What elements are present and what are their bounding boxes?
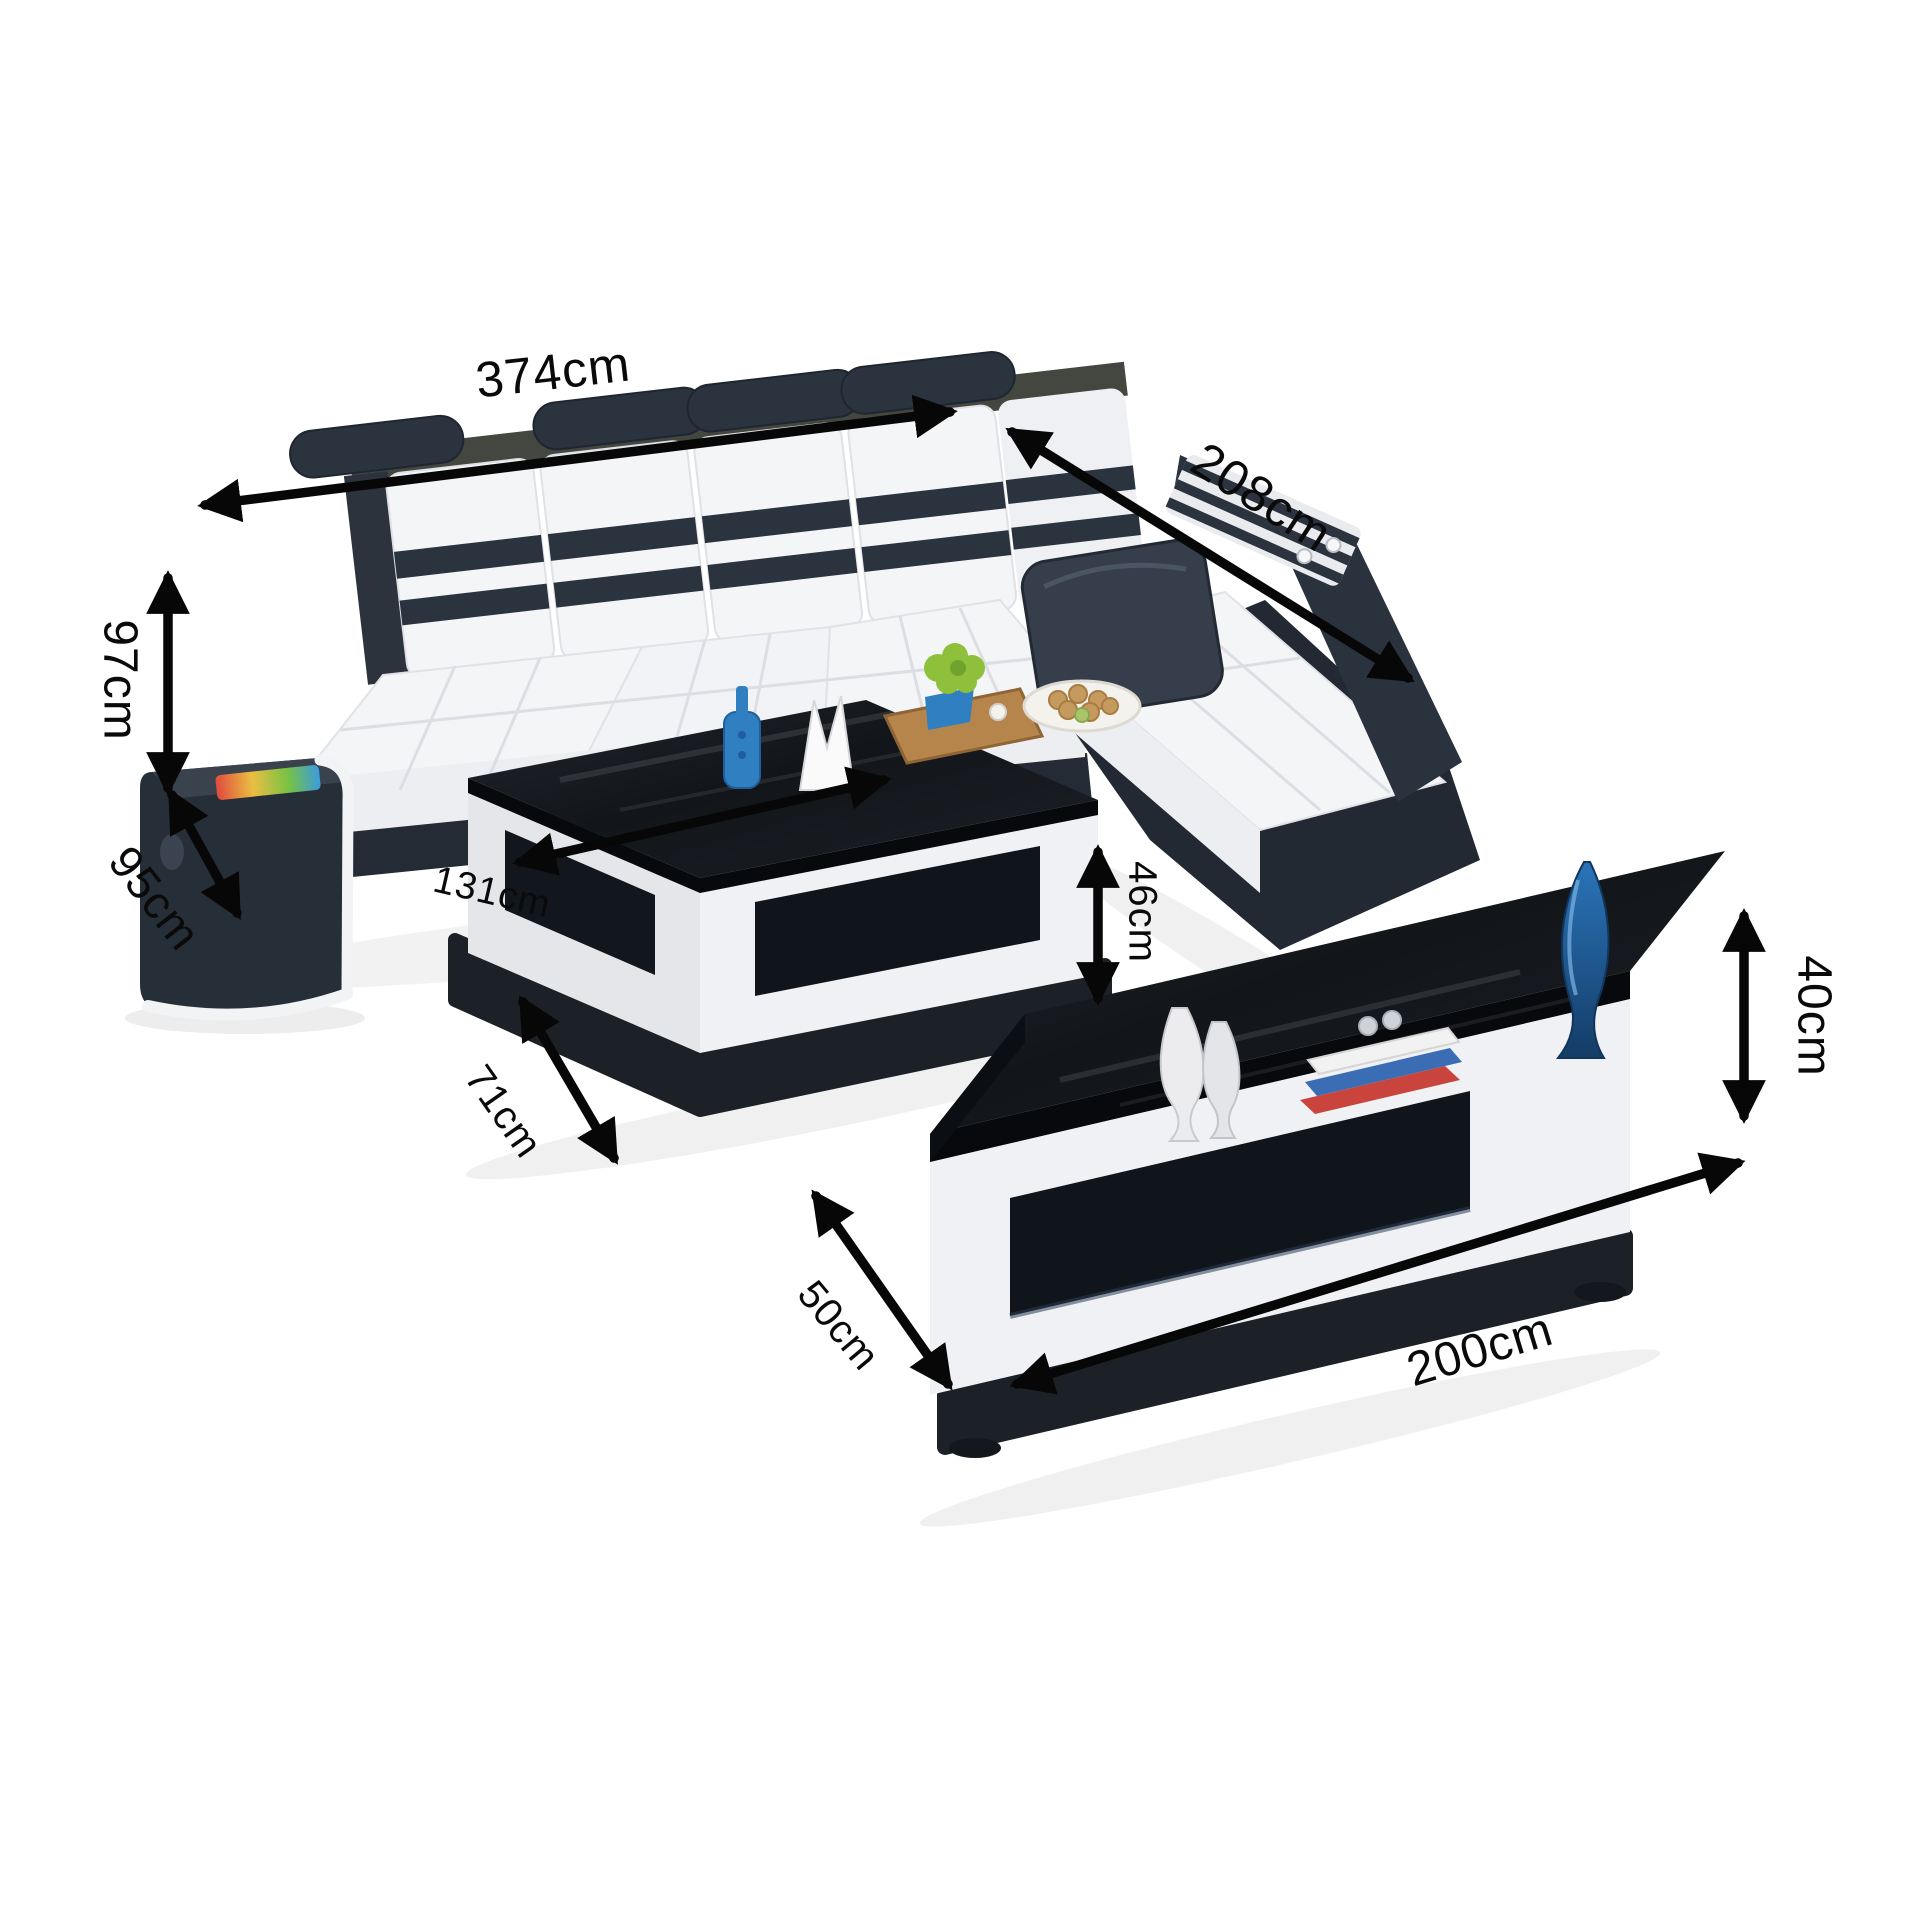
furniture-dimension-diagram: 374cm 208cm 97cm 95cm 131cm 46cm 71cm 50… [0,0,1920,1920]
dimension-label-tv-stand-height: 40cm [1787,955,1842,1076]
dimension-label-sofa-height: 97cm [93,619,148,740]
dimension-label-coffee-table-height: 46cm [1120,861,1165,963]
furniture-illustration [0,0,1920,1920]
